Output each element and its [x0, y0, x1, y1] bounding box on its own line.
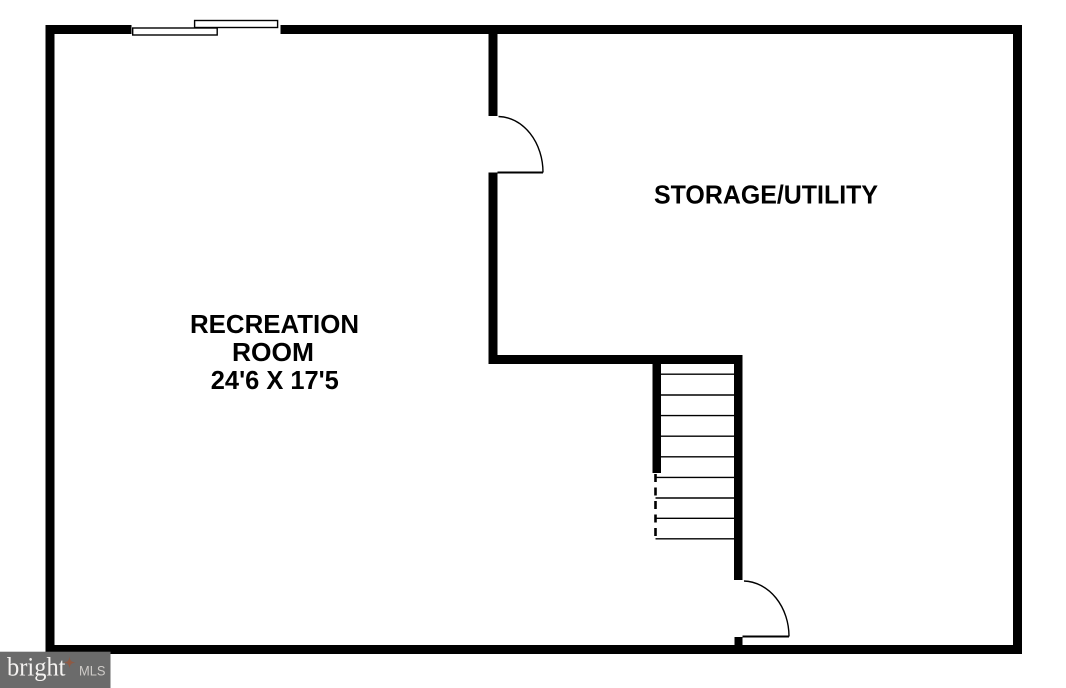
svg-text:STORAGE/UTILITY: STORAGE/UTILITY	[654, 182, 878, 210]
svg-text:RECREATION: RECREATION	[190, 311, 359, 339]
svg-text:24'6 X 17'5: 24'6 X 17'5	[211, 367, 339, 395]
svg-text:bright: bright	[7, 652, 66, 682]
svg-text:MLS: MLS	[79, 664, 106, 679]
svg-text:ROOM: ROOM	[232, 339, 314, 367]
